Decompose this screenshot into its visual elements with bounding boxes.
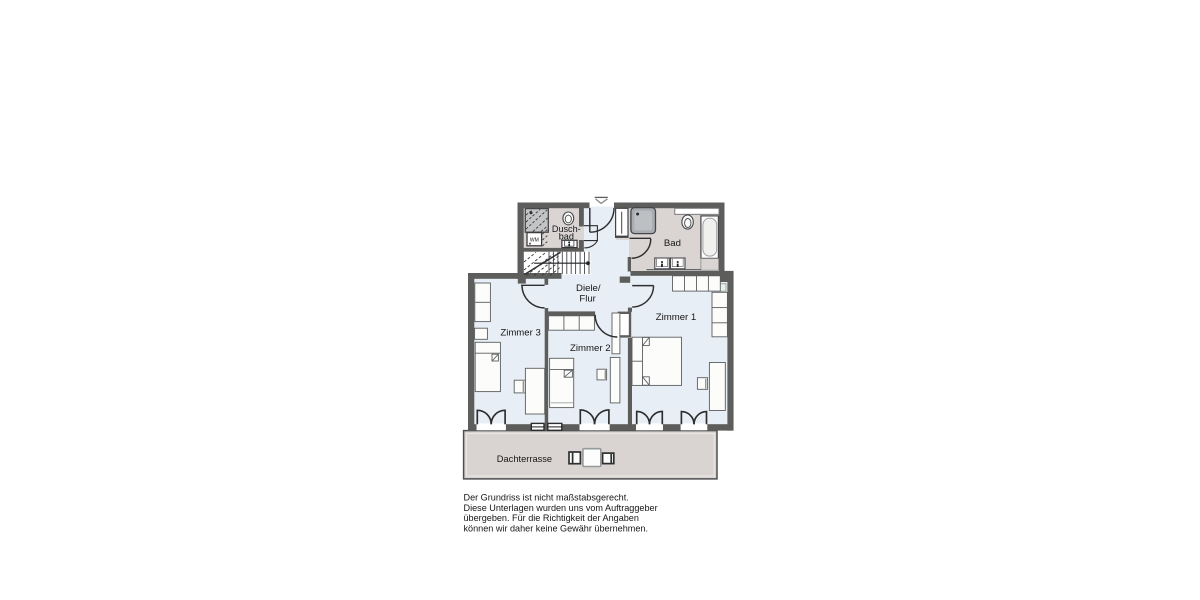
svg-text:Diele/: Diele/ xyxy=(576,283,601,294)
svg-text:können wir daher keine Gewähr: können wir daher keine Gewähr übernehmen… xyxy=(464,523,649,533)
svg-text:Zimmer 3: Zimmer 3 xyxy=(500,327,541,338)
svg-text:Der Grundriss ist nicht maßsta: Der Grundriss ist nicht maßstabsgerecht. xyxy=(464,492,629,502)
svg-text:Flur: Flur xyxy=(579,294,596,305)
svg-text:bad: bad xyxy=(559,231,574,241)
svg-text:Bad: Bad xyxy=(664,238,681,249)
svg-text:WM: WM xyxy=(530,238,539,244)
svg-text:Zimmer 1: Zimmer 1 xyxy=(656,312,697,323)
svg-text:Dachterrasse: Dachterrasse xyxy=(497,454,552,464)
svg-text:übergeben. Für die Richtigkeit: übergeben. Für die Richtigkeit der Angab… xyxy=(464,513,639,523)
svg-text:Diese Unterlagen wurden uns vo: Diese Unterlagen wurden uns vom Auftragg… xyxy=(464,503,658,513)
svg-text:Zimmer 2: Zimmer 2 xyxy=(570,343,611,354)
